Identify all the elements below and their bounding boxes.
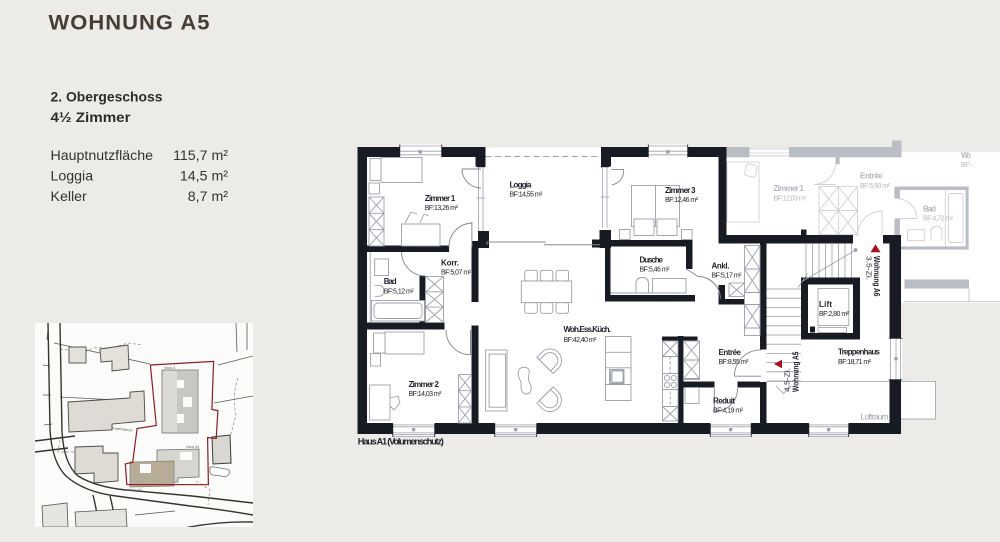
svg-text:Lift: Lift	[819, 300, 832, 309]
svg-text:BF:-: BF:-	[961, 162, 974, 169]
svg-text:4½ Zimmer: 4½ Zimmer	[51, 110, 132, 125]
svg-text:BF:4,19 m²: BF:4,19 m²	[713, 407, 744, 414]
svg-text:14,5 m²: 14,5 m²	[180, 169, 228, 185]
svg-text:Haus A1: Haus A1	[129, 488, 142, 492]
svg-text:Woh.Ess.Küch.: Woh.Ess.Küch.	[564, 325, 612, 334]
svg-text:BF:5,17 m²: BF:5,17 m²	[712, 272, 743, 279]
svg-text:BF:4,72 m²: BF:4,72 m²	[923, 216, 954, 223]
svg-text:BF:5,46 m²: BF:5,46 m²	[640, 266, 671, 273]
svg-text:Haus A1 (Volumenschutz): Haus A1 (Volumenschutz)	[358, 436, 444, 446]
svg-text:BF:42,40 m²: BF:42,40 m²	[564, 337, 598, 344]
svg-text:BF:5,90 m²: BF:5,90 m²	[860, 183, 891, 190]
svg-text:BF:5,12 m²: BF:5,12 m²	[384, 288, 415, 295]
svg-text:Hauptnutzfläche: Hauptnutzfläche	[51, 148, 154, 164]
svg-text:Zimmer 1: Zimmer 1	[774, 184, 805, 193]
svg-text:Entrée: Entrée	[719, 348, 742, 357]
svg-text:Loggia: Loggia	[51, 169, 94, 185]
svg-text:Zimmer 1: Zimmer 1	[425, 194, 456, 203]
svg-text:Haus A: Haus A	[164, 366, 176, 370]
svg-text:BF:12,03 m²: BF:12,03 m²	[774, 196, 808, 203]
svg-text:BF:14,03 m²: BF:14,03 m²	[409, 391, 443, 398]
svg-text:Zimmer 3: Zimmer 3	[665, 186, 696, 195]
svg-text:Haus A4: Haus A4	[186, 445, 199, 449]
svg-text:Keller: Keller	[51, 189, 88, 205]
svg-text:Wo: Wo	[961, 151, 971, 160]
svg-text:BF:5,07 m²: BF:5,07 m²	[441, 269, 472, 276]
svg-text:BF:18,71 m²: BF:18,71 m²	[838, 359, 872, 366]
svg-text:WOHNUNG A5: WOHNUNG A5	[49, 11, 211, 35]
svg-text:Luftraum: Luftraum	[861, 413, 889, 422]
svg-text:BF:12,46 m²: BF:12,46 m²	[665, 197, 699, 204]
svg-text:Wohnung A6: Wohnung A6	[872, 256, 881, 297]
svg-text:Loggia: Loggia	[510, 181, 533, 190]
svg-text:115,7 m²: 115,7 m²	[173, 148, 228, 164]
svg-text:Bad: Bad	[384, 277, 397, 286]
svg-text:Ankl.: Ankl.	[712, 262, 730, 271]
svg-text:8,7 m²: 8,7 m²	[188, 189, 228, 205]
svg-text:2. Obergeschoss: 2. Obergeschoss	[51, 90, 163, 105]
svg-text:Treppenhaus: Treppenhaus	[838, 347, 881, 356]
svg-text:BF:13,26 m²: BF:13,26 m²	[425, 205, 459, 212]
svg-text:BF:2,80 m²: BF:2,80 m²	[819, 311, 850, 318]
svg-text:Korr.: Korr.	[441, 259, 459, 268]
svg-text:Bad: Bad	[923, 205, 936, 214]
svg-text:Dusche: Dusche	[640, 256, 664, 265]
svg-text:BF:14,55 m²: BF:14,55 m²	[510, 191, 544, 198]
svg-text:Wohnung A5: Wohnung A5	[792, 351, 801, 392]
svg-text:4.5-Zi.: 4.5-Zi.	[785, 368, 792, 392]
svg-text:Entrée: Entrée	[860, 172, 883, 181]
svg-text:3.5-Zi.: 3.5-Zi.	[865, 256, 872, 280]
svg-text:Zimmer 2: Zimmer 2	[409, 380, 440, 389]
svg-text:Reduit: Reduit	[713, 397, 735, 406]
svg-text:BF:8,55 m²: BF:8,55 m²	[719, 359, 750, 366]
